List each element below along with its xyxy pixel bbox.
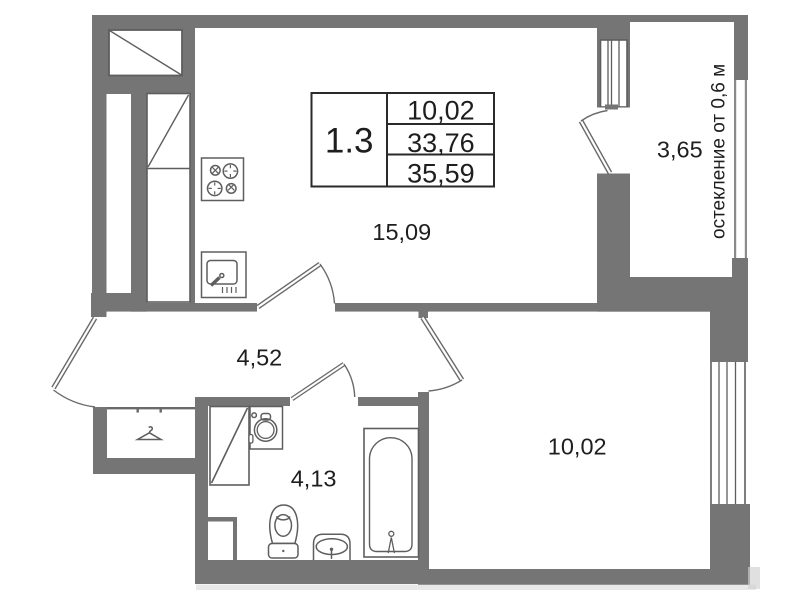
svg-text:3,65: 3,65: [657, 137, 703, 163]
svg-text:10,02: 10,02: [407, 96, 475, 126]
svg-text:33,76: 33,76: [407, 128, 475, 158]
svg-text:1.3: 1.3: [325, 122, 374, 161]
svg-text:15,09: 15,09: [372, 219, 431, 245]
svg-text:4,13: 4,13: [291, 466, 337, 492]
svg-text:4,52: 4,52: [237, 345, 283, 371]
svg-text:остекление от 0,6 м: остекление от 0,6 м: [709, 64, 730, 239]
svg-text:10,02: 10,02: [548, 434, 607, 460]
svg-text:35,59: 35,59: [407, 159, 475, 189]
